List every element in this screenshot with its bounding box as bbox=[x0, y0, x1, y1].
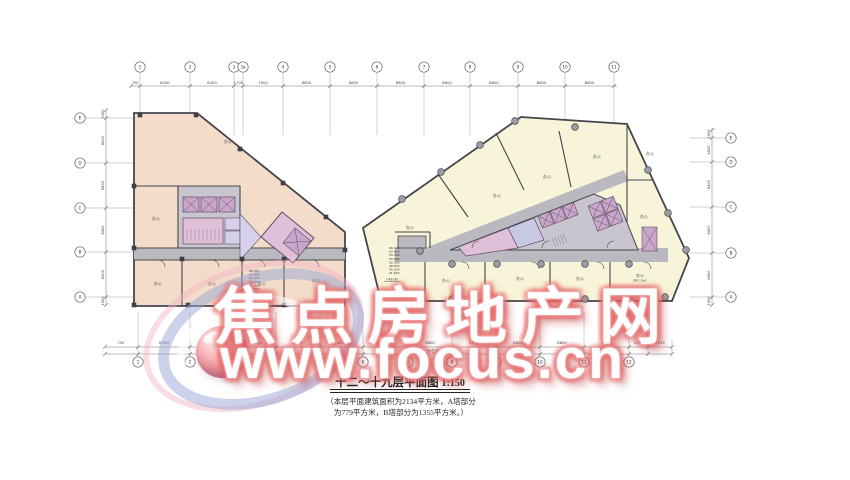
column-marker bbox=[240, 257, 245, 262]
grid-bubble-label: 12 bbox=[626, 360, 632, 365]
grid-bubble-label: 10 bbox=[562, 65, 568, 70]
column-marker bbox=[683, 247, 690, 254]
tower-a-service-room bbox=[225, 218, 240, 230]
column-marker bbox=[417, 248, 424, 255]
dim-label: 8400 bbox=[101, 225, 105, 235]
room-label: 办公 bbox=[224, 138, 232, 144]
room-label: 办公 bbox=[640, 213, 648, 219]
column-marker bbox=[238, 147, 243, 152]
area-note-line2: 为779平方米，B塔部分为1355平方米。） bbox=[303, 407, 499, 418]
area-note: （本层平面建筑面积为2134平方米，A塔部分 为779平方米，B塔部分为1355… bbox=[303, 396, 499, 418]
column-marker bbox=[281, 181, 286, 186]
grid-bubble-label: C bbox=[79, 206, 82, 211]
dim-label: 8800 bbox=[489, 80, 499, 85]
grid-bubble-label: 1 bbox=[137, 360, 140, 365]
dim-label: 8400 bbox=[101, 269, 105, 279]
grid-bubble-label: D bbox=[78, 161, 81, 166]
grid-bubble-label: 5 bbox=[329, 65, 332, 70]
dim-label: 8400 bbox=[707, 179, 711, 189]
column-marker bbox=[138, 113, 143, 118]
grid-bubble-label: 1 bbox=[139, 65, 142, 70]
grid-bubble-label: 11 bbox=[611, 65, 617, 70]
dim-label: 8400 bbox=[101, 180, 105, 190]
grid-bubble-label: 7 bbox=[423, 65, 426, 70]
column-marker bbox=[180, 257, 185, 262]
dim-label: 1500 bbox=[707, 129, 711, 139]
dim-label: 750 bbox=[132, 81, 140, 85]
column-marker bbox=[477, 142, 484, 149]
grid-bubble-label: 2 bbox=[189, 65, 192, 70]
dim-label: 1500 bbox=[101, 296, 105, 306]
room-label: 办公 bbox=[152, 215, 160, 221]
dim-label: 8400 bbox=[707, 225, 711, 235]
dim-label: 1500 bbox=[707, 296, 711, 306]
grid-bubble-label: 3 bbox=[233, 65, 236, 70]
room-label: 办公 bbox=[493, 192, 501, 198]
column-marker bbox=[132, 184, 137, 189]
room-label: 办公 bbox=[154, 280, 162, 286]
dim-label: 8800 bbox=[349, 80, 359, 85]
column-marker bbox=[399, 196, 406, 203]
column-marker bbox=[512, 118, 519, 125]
grid-bubble-label: B bbox=[730, 251, 733, 256]
column-marker bbox=[132, 303, 137, 308]
grid-bubble-label: 6 bbox=[376, 65, 379, 70]
grid-bubble-label: 8 bbox=[469, 65, 472, 70]
dim-label: 8800 bbox=[442, 80, 452, 85]
dim-label: 8400 bbox=[707, 270, 711, 280]
dim-label: 1500 bbox=[101, 109, 105, 119]
dim-label: 8400 bbox=[101, 135, 105, 145]
column-marker bbox=[645, 167, 652, 174]
grid-bubble-label: B bbox=[79, 250, 82, 255]
grid-bubble-label: E bbox=[79, 116, 82, 121]
room-label: 办公 bbox=[646, 150, 654, 156]
dim-label: 4500 bbox=[707, 145, 711, 155]
tower-b-side-elevator bbox=[642, 227, 657, 251]
dim-label: 750 bbox=[118, 341, 126, 345]
tower-a-corridor bbox=[134, 248, 345, 260]
column-marker bbox=[194, 113, 199, 118]
dim-label: 8800 bbox=[302, 80, 312, 85]
tower-b-utility bbox=[398, 236, 426, 248]
column-marker bbox=[438, 169, 445, 176]
watermark-url: www.focus.cn bbox=[220, 326, 625, 392]
grid-bubble-label: 3a bbox=[240, 65, 246, 70]
tower-a-service-room bbox=[225, 231, 240, 244]
dim-label: 8800 bbox=[585, 80, 595, 85]
dim-label: 8200 bbox=[160, 80, 170, 85]
room-label: 办公 bbox=[543, 173, 551, 179]
column-marker bbox=[132, 246, 137, 251]
column-marker bbox=[572, 124, 579, 131]
room-label: 办公 bbox=[593, 153, 601, 159]
area-note-line1: （本层平面建筑面积为2134平方米，A塔部分 bbox=[303, 396, 499, 407]
dim-label: 1700 bbox=[234, 80, 244, 85]
grid-bubble-label: A bbox=[79, 295, 82, 300]
grid-bubble-label: A bbox=[730, 295, 733, 300]
grid-bubble-label: 4 bbox=[282, 65, 285, 70]
grid-bubble-label: D bbox=[729, 160, 732, 165]
grid-bubble-label: E bbox=[730, 136, 733, 141]
grid-bubble-label: 9 bbox=[517, 65, 520, 70]
title-underline-2 bbox=[330, 392, 470, 393]
dim-label: 8800 bbox=[396, 80, 406, 85]
dim-label: 8800 bbox=[537, 80, 547, 85]
dim-label: 7500 bbox=[258, 80, 268, 85]
floorplan-drawing-page: 1233a45678910117508200840017007500880088… bbox=[0, 0, 850, 480]
tower-a-elevator-bank bbox=[183, 197, 235, 212]
room-label: 办公 bbox=[406, 224, 414, 230]
column-marker bbox=[324, 215, 329, 220]
column-marker bbox=[665, 210, 672, 217]
column-marker bbox=[343, 248, 348, 253]
dim-label: 8400 bbox=[207, 80, 217, 85]
grid-bubble-label: C bbox=[730, 205, 733, 210]
